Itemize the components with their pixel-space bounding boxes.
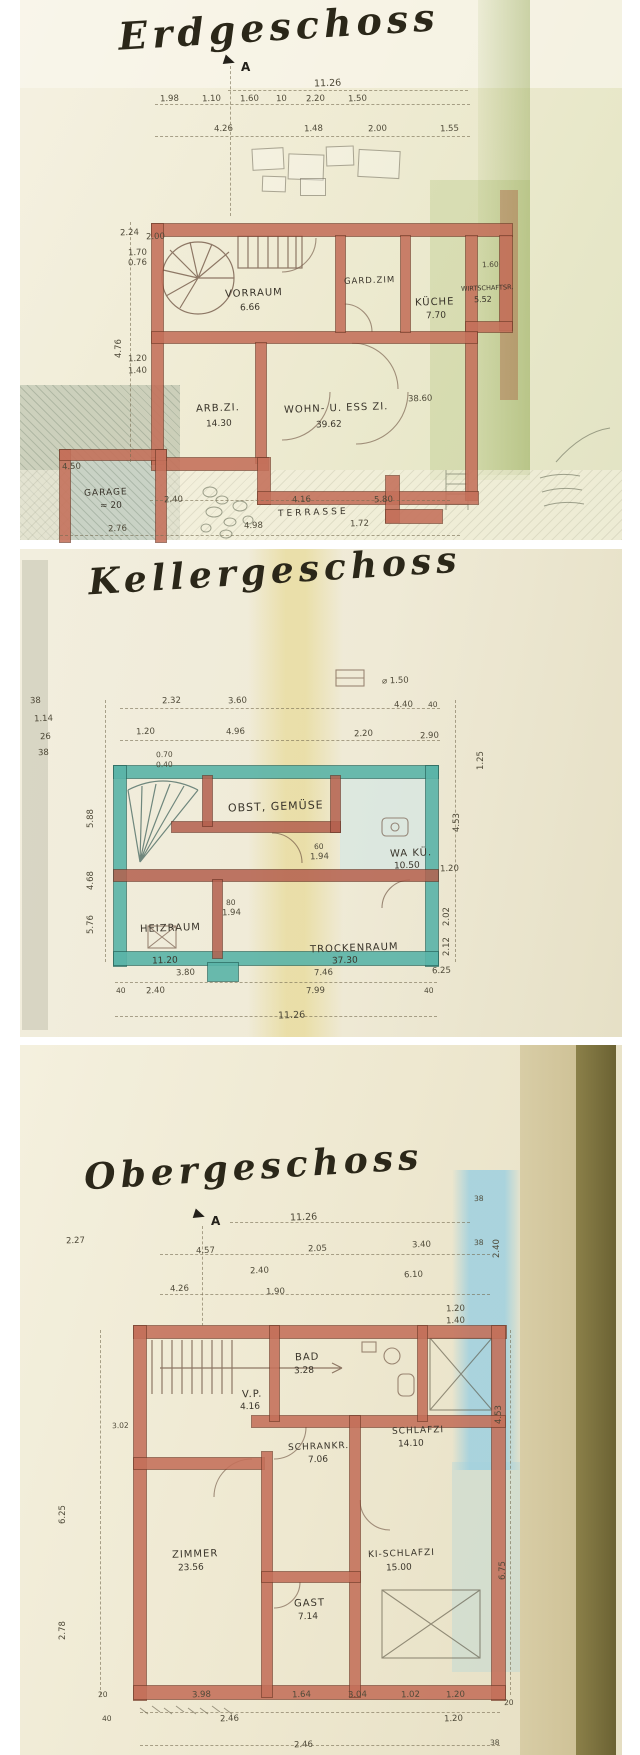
dim-label: 20 <box>504 1698 514 1707</box>
dim-label: 4.57 <box>196 1246 215 1257</box>
room-area: 39.62 <box>316 420 342 431</box>
dim-label: 1.55 <box>440 124 459 135</box>
olive-band <box>576 1044 616 1755</box>
dim-label: 2.78 <box>58 1621 68 1640</box>
inner-wall <box>203 776 212 826</box>
dim-label: 40 <box>116 986 126 995</box>
dim-label: 1.94 <box>222 908 241 919</box>
basement-wall <box>426 766 438 966</box>
dim-label: 11.26 <box>314 78 342 90</box>
room-name: GAST <box>294 1597 325 1609</box>
room-area: 5.52 <box>474 295 492 305</box>
dim-label: 2.46 <box>220 1714 239 1725</box>
dim-label: 1.94 <box>310 852 329 863</box>
room-name: SCHRANKR. <box>288 1441 350 1453</box>
room-area: 7.14 <box>298 1612 318 1623</box>
inner-wall <box>114 870 438 881</box>
room-area: 14.30 <box>206 419 232 430</box>
wall-segment <box>252 1416 505 1427</box>
dim-label: 38 <box>30 696 41 706</box>
dim-label: 1.20 <box>136 727 155 738</box>
pencil-sketch-box <box>262 176 287 193</box>
room-name: HEIZRAUM <box>140 922 201 935</box>
wall-segment <box>134 1326 146 1700</box>
scanned-floor-plans: Erdgeschoss A 11.26 1.98 1.10 1.60 10 2.… <box>0 0 640 1755</box>
room-area: 4.16 <box>240 1402 260 1413</box>
terrace-wall <box>386 510 442 523</box>
dimension-line <box>155 136 470 137</box>
dim-label: 2.20 <box>354 729 373 740</box>
wall-segment <box>466 322 512 332</box>
dim-label: 1.70 <box>128 248 147 259</box>
page-margin-left <box>0 0 20 1755</box>
dim-label: 5.76 <box>86 915 96 934</box>
dim-label: 40 <box>424 986 434 995</box>
dim-label: 2.02 <box>442 907 452 926</box>
dim-label: 1.90 <box>266 1287 285 1298</box>
dim-label: 3.02 <box>112 1421 129 1431</box>
room-area: 6.66 <box>240 303 260 314</box>
room-area: ≈ 20 <box>100 501 122 512</box>
dimension-line <box>60 535 460 536</box>
dim-label: ⌀ 1.50 <box>382 676 409 687</box>
inner-wall <box>213 880 222 958</box>
room-area: 37.30 <box>332 956 358 967</box>
dim-label: 1.60 <box>482 260 499 270</box>
room-area: 3.28 <box>294 1366 314 1377</box>
dim-label: 38 <box>38 748 49 758</box>
wall-segment <box>401 236 410 332</box>
dim-label: 38 <box>490 1738 500 1747</box>
dim-label: 2.40 <box>164 495 183 506</box>
dim-label: 1.14 <box>34 714 53 725</box>
dim-label: 1.60 <box>240 94 259 105</box>
dim-label: 1.20 <box>446 1690 465 1701</box>
dim-label: 4.96 <box>226 727 245 738</box>
wall-segment <box>152 224 512 236</box>
dim-label: 2.40 <box>492 1239 502 1258</box>
dim-label: 6.25 <box>58 1505 68 1524</box>
dimension-line <box>230 1222 470 1223</box>
left-edge-shadow <box>22 560 48 1030</box>
dim-label: 4.16 <box>292 495 311 506</box>
garage-wall <box>60 450 166 460</box>
dimension-line <box>120 708 440 709</box>
dim-label: 80 <box>226 898 236 907</box>
dim-label: 38 <box>474 1238 484 1247</box>
basement-wall <box>114 766 126 966</box>
wall-segment <box>256 343 266 463</box>
dim-label: 3.04 <box>348 1690 367 1701</box>
dim-label: 1.20 <box>440 864 459 875</box>
pencil-sketch-box <box>288 153 325 180</box>
dim-label: 4.53 <box>452 813 462 832</box>
inner-wall <box>331 776 340 832</box>
dim-label: 1.10 <box>202 94 221 105</box>
dimension-line <box>100 1330 101 1695</box>
dim-label: 11.26 <box>290 1212 318 1224</box>
tan-band <box>520 1044 576 1755</box>
dim-label: 1.20 <box>446 1304 465 1315</box>
dim-label: 2.40 <box>250 1266 269 1277</box>
dim-label: 1.40 <box>128 366 147 377</box>
dim-label: 4.26 <box>214 124 233 135</box>
room-name: KÜCHE <box>415 296 455 308</box>
pencil-sketch-box <box>251 147 284 171</box>
room-name: V.P. <box>242 1389 263 1401</box>
dim-label: 1.64 <box>292 1690 311 1701</box>
pencil-sketch-box <box>357 149 400 179</box>
page-margin-right <box>622 0 640 1755</box>
dimension-line <box>140 1712 500 1713</box>
pencil-sketch-box <box>300 178 326 196</box>
pencil-sketch-box <box>326 146 355 167</box>
dim-label: 3.40 <box>412 1240 431 1251</box>
dim-label: 4.50 <box>62 462 81 473</box>
dim-label: 2.24 <box>120 228 139 239</box>
room-name: GARAGE <box>84 487 128 499</box>
room-area: 7.70 <box>426 311 446 322</box>
dim-label: 40 <box>102 1714 112 1723</box>
dim-label: 2.27 <box>66 1236 85 1247</box>
room-name: SCHLAFZI <box>392 1425 444 1437</box>
section-marker: A <box>241 60 250 74</box>
dimension-line <box>160 1294 490 1295</box>
dim-label: 2.20 <box>306 94 325 105</box>
room-area: 7.06 <box>308 1455 328 1466</box>
room-area: 11.20 <box>152 956 178 967</box>
dim-label: 6.75 <box>498 1561 508 1580</box>
room-name: WA KÜ. <box>390 847 433 859</box>
dim-label: 1.40 <box>446 1316 465 1327</box>
room-name: GARD.ZIM <box>344 275 396 287</box>
dim-label: 2.12 <box>442 937 452 956</box>
dim-label: 1.50 <box>348 94 367 105</box>
dim-label: 10 <box>276 94 287 104</box>
wall-segment <box>134 1458 264 1469</box>
dim-label: 2.90 <box>420 731 439 742</box>
dim-label: 5.80 <box>374 495 393 506</box>
dim-label: 1.20 <box>128 354 147 365</box>
dim-label: 38.60 <box>408 394 433 405</box>
dim-label: 2.32 <box>162 696 181 707</box>
dim-label: 0.76 <box>128 258 147 269</box>
wall-segment <box>152 458 268 470</box>
room-area: 23.56 <box>178 1563 204 1574</box>
section-line-a <box>230 66 231 216</box>
wall-segment <box>152 332 477 343</box>
dim-label: 1.25 <box>476 751 486 770</box>
dim-label: 11.26 <box>278 1010 306 1022</box>
dim-label: 1.02 <box>401 1690 420 1701</box>
dim-label: 0.70 <box>156 750 173 760</box>
dim-label: 5.88 <box>86 809 96 828</box>
dim-label: 26 <box>40 732 51 742</box>
wall-segment <box>262 1572 360 1582</box>
dimension-line <box>228 90 468 91</box>
dim-label: 1.98 <box>160 94 179 105</box>
dimension-line <box>120 740 440 741</box>
room-name: BAD <box>295 1352 320 1364</box>
dim-label: 2.76 <box>108 524 127 535</box>
blue-fold-band-fade <box>452 1462 522 1672</box>
dimension-line <box>140 1745 500 1746</box>
room-name: ZIMMER <box>172 1548 219 1561</box>
room-name: VORRAUM <box>225 287 283 300</box>
dim-label: 38 <box>474 1194 484 1203</box>
dim-label: 60 <box>314 842 324 851</box>
room-area: 10.50 <box>394 861 420 872</box>
dim-label: 2.46 <box>294 1740 313 1751</box>
room-name: ARB.ZI. <box>196 402 240 415</box>
dim-label: 7.46 <box>314 968 333 979</box>
wall-segment <box>492 1326 505 1700</box>
dim-label: 4.53 <box>494 1405 504 1424</box>
wall-segment <box>350 1416 360 1697</box>
dim-label: 2.00 <box>146 232 165 243</box>
section-line-a <box>202 1226 203 1326</box>
dim-label: 2.40 <box>146 986 165 997</box>
dim-label: 4.98 <box>244 521 263 532</box>
dim-label: 6.10 <box>404 1270 423 1281</box>
inner-wall <box>172 822 340 832</box>
wall-segment <box>418 1326 427 1421</box>
dim-label: 1.72 <box>350 519 369 530</box>
dimension-line <box>510 1330 511 1695</box>
chimney-stub <box>208 963 238 981</box>
dim-label: 4.76 <box>114 339 124 358</box>
dim-label: 1.20 <box>444 1714 463 1725</box>
wall-segment <box>270 1326 279 1421</box>
dimension-line <box>105 700 106 962</box>
dim-label: 4.40 <box>394 700 413 711</box>
room-area: 15.00 <box>386 1563 412 1574</box>
dim-label: 3.98 <box>192 1690 211 1701</box>
wall-segment <box>466 236 477 500</box>
dim-label: 7.99 <box>306 986 325 997</box>
dim-label: 3.60 <box>228 696 247 707</box>
dimension-line <box>115 1016 437 1017</box>
dim-label: 4.26 <box>170 1284 189 1295</box>
dim-label: 2.00 <box>368 124 387 135</box>
dim-label: 20 <box>98 1690 108 1699</box>
dim-label: 3.80 <box>176 968 195 979</box>
dim-label: 2.05 <box>308 1244 327 1255</box>
dimension-line <box>115 982 437 983</box>
wall-segment <box>152 224 163 464</box>
dim-label: 4.68 <box>86 871 96 890</box>
dim-label: 6.25 <box>432 966 451 977</box>
wall-segment <box>134 1326 506 1338</box>
dim-label: 1.48 <box>304 124 323 135</box>
section-marker: A <box>211 1214 220 1228</box>
photo-gap <box>0 1037 640 1045</box>
room-area: 14.10 <box>398 1439 424 1450</box>
dim-label: 0.40 <box>156 760 173 770</box>
dim-label: 40 <box>428 700 438 709</box>
